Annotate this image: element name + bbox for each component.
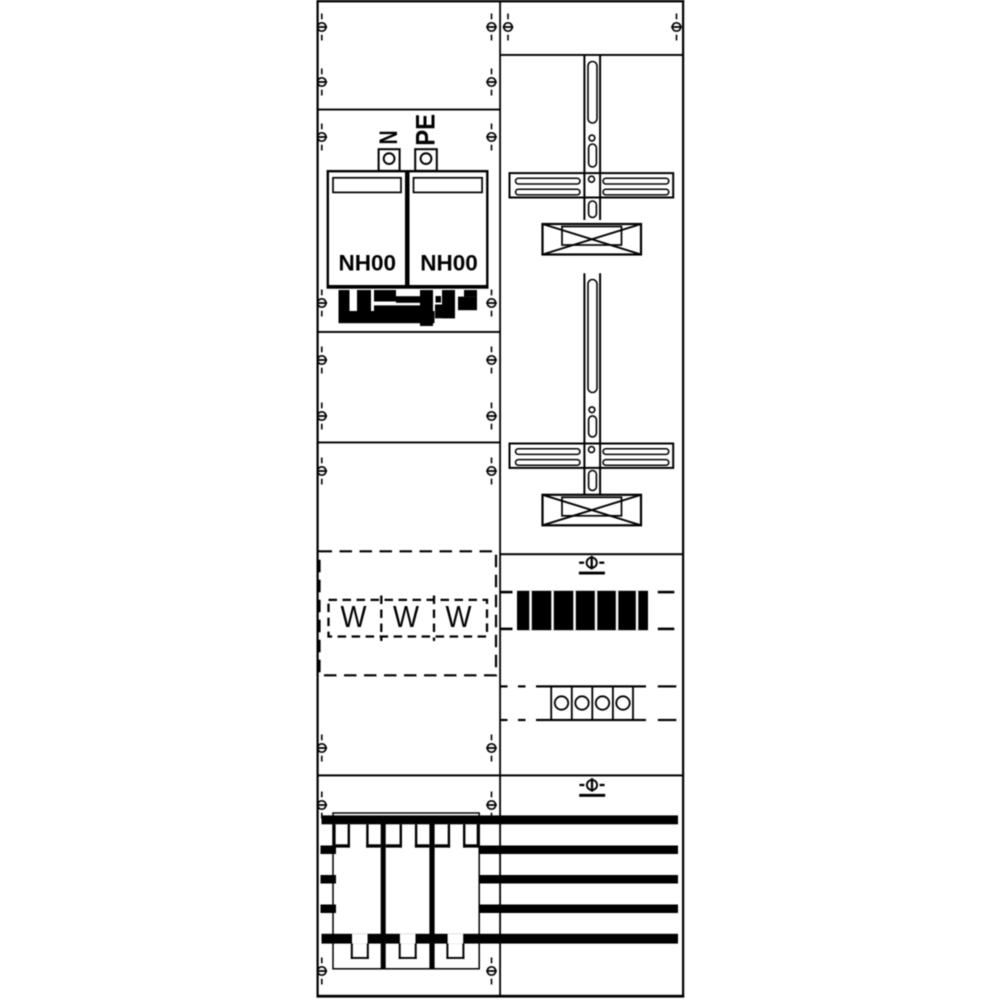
svg-text:W: W	[446, 600, 472, 634]
svg-text:NH00: NH00	[420, 251, 478, 276]
svg-text:N: N	[375, 130, 403, 144]
svg-text:PE: PE	[410, 114, 440, 146]
svg-text:W: W	[341, 600, 367, 634]
svg-text:NH00: NH00	[339, 251, 397, 276]
svg-text:W: W	[393, 600, 419, 634]
